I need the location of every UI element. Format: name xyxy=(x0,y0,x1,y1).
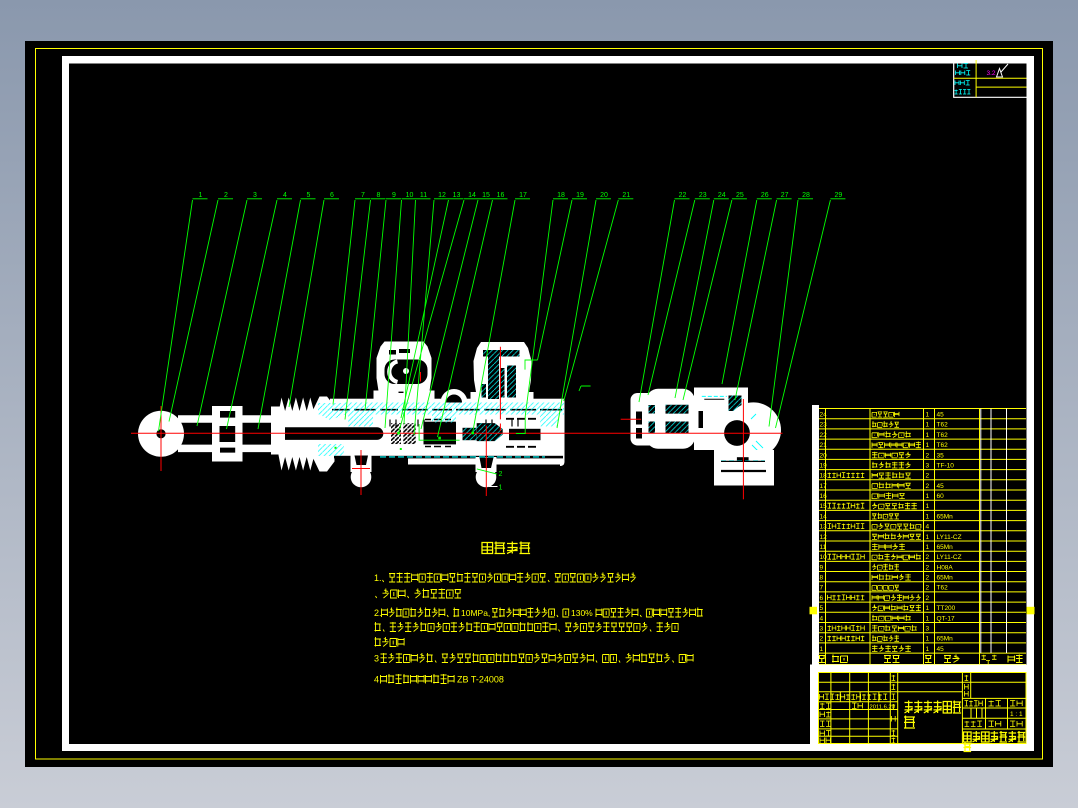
svg-text:24: 24 xyxy=(820,412,828,419)
svg-text:19: 19 xyxy=(820,462,828,469)
svg-text:1: 1 xyxy=(926,422,930,429)
svg-text:2: 2 xyxy=(926,452,930,459)
svg-text:1: 1 xyxy=(926,503,930,510)
svg-text:45: 45 xyxy=(937,412,945,419)
svg-text:23: 23 xyxy=(699,192,707,199)
svg-text:16: 16 xyxy=(820,493,828,500)
svg-text:15: 15 xyxy=(820,503,828,510)
svg-text:22: 22 xyxy=(820,432,828,439)
svg-text:1: 1 xyxy=(926,513,930,520)
svg-text:QT-17: QT-17 xyxy=(937,615,955,622)
svg-text:28: 28 xyxy=(802,192,810,199)
svg-text:ZB T-24008: ZB T-24008 xyxy=(457,675,504,685)
svg-text:1: 1 xyxy=(926,605,930,612)
svg-text:29: 29 xyxy=(835,192,843,199)
svg-text:16: 16 xyxy=(497,192,505,199)
svg-text:6: 6 xyxy=(820,595,824,602)
svg-text:9: 9 xyxy=(392,192,396,199)
svg-text:3: 3 xyxy=(374,654,379,664)
svg-text:4: 4 xyxy=(926,524,930,531)
svg-text:18: 18 xyxy=(820,473,828,480)
svg-text:7: 7 xyxy=(361,192,365,199)
svg-text:3: 3 xyxy=(820,626,824,633)
svg-text:2: 2 xyxy=(926,585,930,592)
svg-text:2: 2 xyxy=(224,192,228,199)
svg-text:2: 2 xyxy=(820,636,824,643)
svg-text:19: 19 xyxy=(576,192,584,199)
svg-text:3: 3 xyxy=(926,462,930,469)
svg-text:T62: T62 xyxy=(937,432,949,439)
svg-text:8: 8 xyxy=(377,192,381,199)
svg-text:21: 21 xyxy=(820,442,828,449)
svg-text:9: 9 xyxy=(820,564,824,571)
svg-text:1: 1 xyxy=(199,192,203,199)
svg-text:1: 1 xyxy=(926,432,930,439)
svg-text:1: 1 xyxy=(926,534,930,541)
svg-text:6: 6 xyxy=(330,192,334,199)
svg-text:10MPa,: 10MPa, xyxy=(461,608,490,618)
svg-text:1: 1 xyxy=(926,615,930,622)
svg-text:1 : 1: 1 : 1 xyxy=(1010,711,1023,718)
svg-text:3: 3 xyxy=(253,192,257,199)
svg-text:13: 13 xyxy=(453,192,461,199)
svg-text:2: 2 xyxy=(926,554,930,561)
svg-text:2: 2 xyxy=(926,473,930,480)
svg-text:65Mn: 65Mn xyxy=(937,636,954,643)
svg-text:LY11-CZ: LY11-CZ xyxy=(937,534,962,541)
svg-text:1: 1 xyxy=(926,544,930,551)
svg-text:22: 22 xyxy=(679,192,687,199)
svg-text:65Mn: 65Mn xyxy=(937,575,954,582)
svg-text:10: 10 xyxy=(406,192,414,199)
svg-text:12: 12 xyxy=(438,192,446,199)
svg-text:24: 24 xyxy=(718,192,726,199)
svg-text:5: 5 xyxy=(307,192,311,199)
svg-text:4: 4 xyxy=(374,675,379,685)
svg-text:1: 1 xyxy=(499,485,503,492)
svg-text:12: 12 xyxy=(820,534,828,541)
svg-text:17: 17 xyxy=(519,192,527,199)
svg-text:13: 13 xyxy=(820,524,828,531)
svg-text:1: 1 xyxy=(926,412,930,419)
svg-text:65Mn: 65Mn xyxy=(937,513,954,520)
svg-text:7: 7 xyxy=(820,585,824,592)
svg-text:T62: T62 xyxy=(937,585,949,592)
svg-text:2011.6.20: 2011.6.20 xyxy=(870,705,895,711)
svg-text:45: 45 xyxy=(937,483,945,490)
svg-text:10: 10 xyxy=(820,554,828,561)
svg-text:23: 23 xyxy=(820,422,828,429)
svg-text:1: 1 xyxy=(926,636,930,643)
svg-text:1.: 1. xyxy=(374,573,382,583)
svg-text:1: 1 xyxy=(926,442,930,449)
svg-text:1: 1 xyxy=(926,646,930,653)
svg-text:11: 11 xyxy=(420,192,427,199)
svg-text:15: 15 xyxy=(482,192,490,199)
svg-text:11: 11 xyxy=(820,544,827,551)
svg-text:3.2: 3.2 xyxy=(987,70,996,77)
svg-text:130%: 130% xyxy=(571,608,593,618)
svg-text:2: 2 xyxy=(926,564,930,571)
svg-text:27: 27 xyxy=(781,192,789,199)
svg-text:TT200: TT200 xyxy=(937,605,956,612)
svg-text:LY11-CZ: LY11-CZ xyxy=(937,554,962,561)
svg-text:65Mn: 65Mn xyxy=(937,544,954,551)
svg-text:14: 14 xyxy=(468,192,476,199)
svg-text:60: 60 xyxy=(937,493,945,500)
svg-text:T62: T62 xyxy=(937,422,949,429)
svg-text:35: 35 xyxy=(937,452,945,459)
svg-text:2.: 2. xyxy=(374,608,382,618)
svg-text:T62: T62 xyxy=(937,442,949,449)
svg-text:2: 2 xyxy=(926,595,930,602)
svg-text:4: 4 xyxy=(283,192,287,199)
svg-text:5: 5 xyxy=(820,605,824,612)
svg-text:TF-10: TF-10 xyxy=(937,462,955,469)
svg-text:45: 45 xyxy=(937,646,945,653)
svg-text:17: 17 xyxy=(820,483,828,490)
svg-text:26: 26 xyxy=(761,192,769,199)
svg-text:14: 14 xyxy=(820,513,828,520)
svg-text:21: 21 xyxy=(622,192,630,199)
svg-text:3: 3 xyxy=(926,626,930,633)
svg-text:H08A: H08A xyxy=(937,564,954,571)
svg-text:20: 20 xyxy=(820,452,828,459)
svg-text:4: 4 xyxy=(820,615,824,622)
svg-text:25: 25 xyxy=(736,192,744,199)
svg-text:1: 1 xyxy=(926,493,930,500)
svg-text:2: 2 xyxy=(926,483,930,490)
svg-text:1: 1 xyxy=(820,646,824,653)
svg-text:2: 2 xyxy=(499,471,503,478)
svg-text:8: 8 xyxy=(820,575,824,582)
svg-text:2: 2 xyxy=(926,575,930,582)
svg-text:18: 18 xyxy=(557,192,565,199)
svg-text:20: 20 xyxy=(600,192,608,199)
